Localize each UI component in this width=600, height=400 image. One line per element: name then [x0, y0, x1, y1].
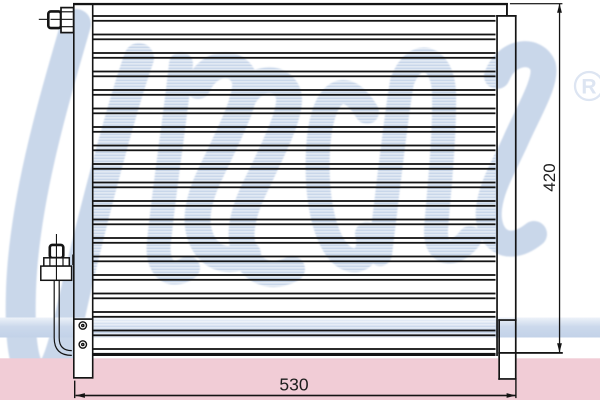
svg-text:R: R: [581, 76, 596, 99]
svg-text:420: 420: [540, 163, 559, 191]
svg-text:530: 530: [279, 375, 308, 395]
